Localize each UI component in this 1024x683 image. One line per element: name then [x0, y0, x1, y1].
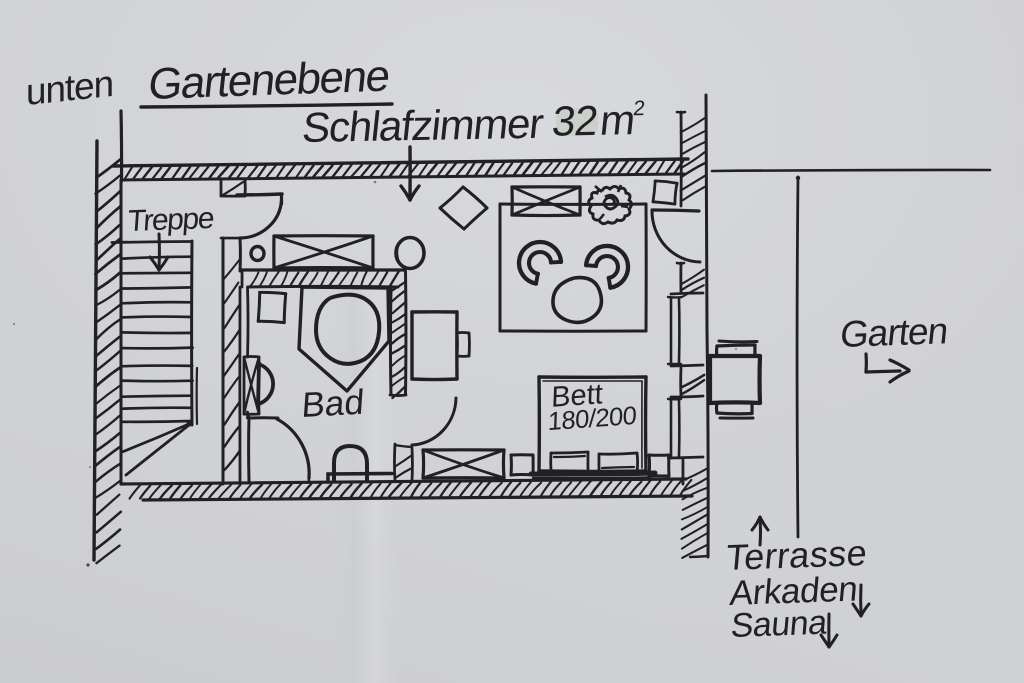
svg-text:Bad: Bad — [300, 383, 365, 425]
svg-text:Treppe: Treppe — [127, 202, 215, 238]
svg-text:2: 2 — [632, 97, 646, 120]
svg-text:Sauna: Sauna — [729, 604, 829, 645]
svg-text:Schlafzimmer: Schlafzimmer — [300, 100, 546, 151]
svg-text:Garten: Garten — [838, 309, 949, 355]
svg-text:Gartenebene: Gartenebene — [146, 52, 391, 109]
svg-text:32: 32 — [550, 97, 600, 145]
